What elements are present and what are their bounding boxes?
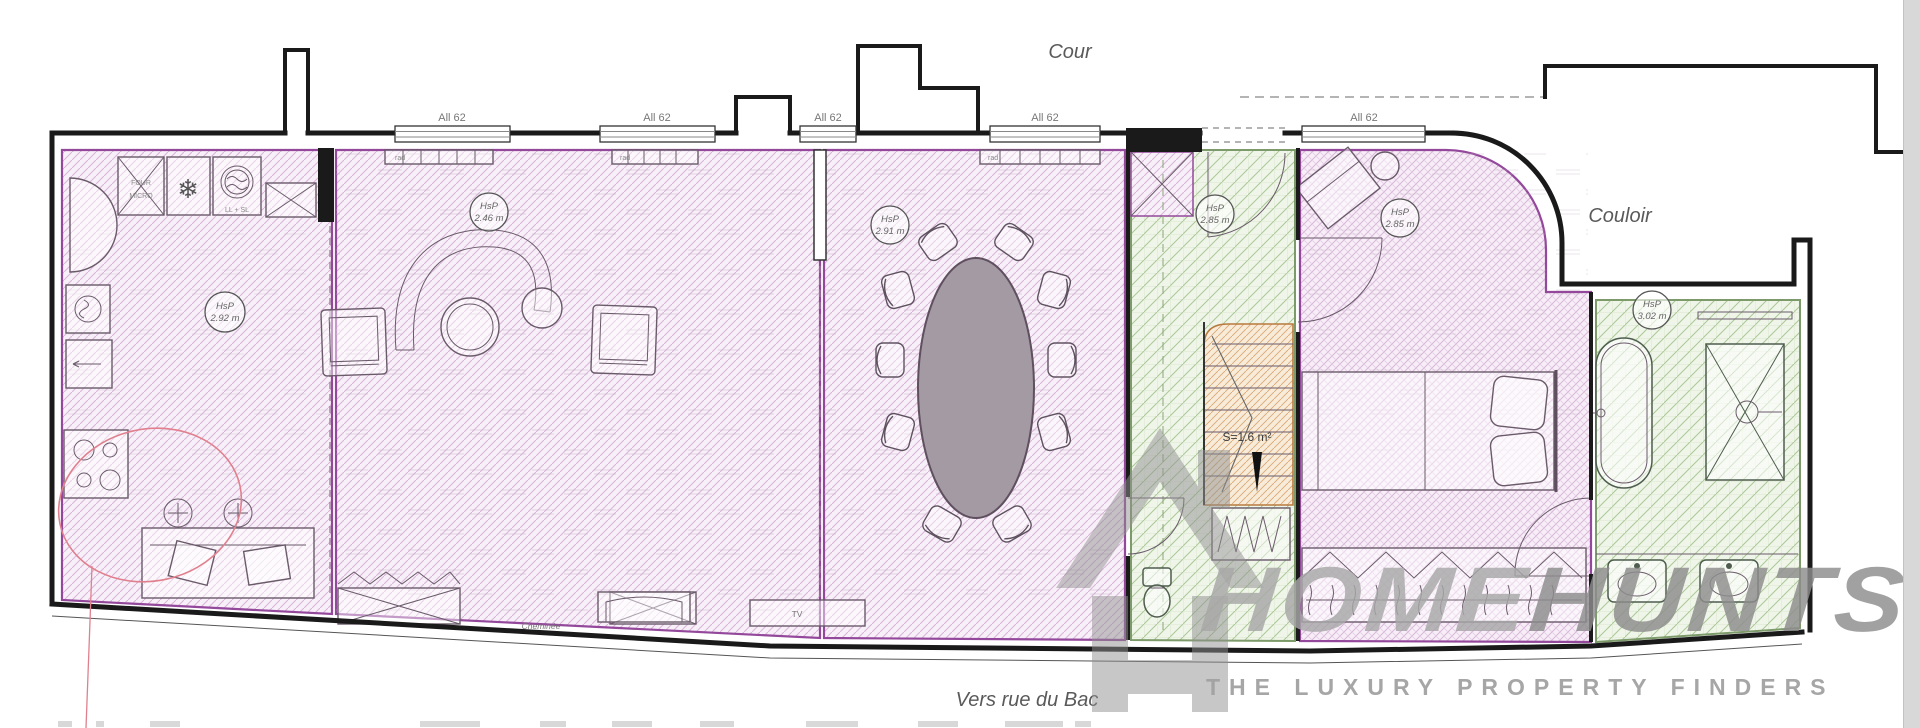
pillow bbox=[1490, 375, 1549, 430]
living-dining-wall-stub bbox=[814, 150, 826, 260]
bathtub bbox=[1591, 338, 1652, 488]
window: All 62 bbox=[990, 112, 1100, 142]
snowflake-icon: ❄ bbox=[177, 174, 199, 204]
window: All 62 bbox=[1302, 112, 1425, 142]
floor-plan-page: FOUR MICRO ❄ LL + SL bbox=[0, 0, 1920, 728]
dining-table bbox=[918, 258, 1034, 518]
window-sill-label: All 62 bbox=[438, 112, 466, 124]
washer-dryer-label: LL + SL bbox=[225, 207, 249, 214]
kitchen-living-wall-stub bbox=[318, 148, 334, 222]
svg-text:HsP: HsP bbox=[881, 214, 900, 225]
armchair bbox=[321, 308, 387, 376]
cropped-dimension-marks bbox=[58, 721, 1091, 727]
svg-text:HsP: HsP bbox=[480, 201, 499, 212]
entry-wall-pier bbox=[1126, 128, 1202, 152]
ceiling-height-badge-entrance: HsP 2.85 m bbox=[1196, 195, 1234, 233]
svg-text:HsP: HsP bbox=[1391, 207, 1410, 218]
cooktop bbox=[64, 430, 128, 498]
exterior-corridor-wall bbox=[1545, 66, 1902, 152]
kitchen-sink bbox=[66, 285, 110, 333]
svg-text:2.91 m: 2.91 m bbox=[874, 226, 904, 237]
window-sill-label: All 62 bbox=[1350, 112, 1378, 124]
coffee-table bbox=[441, 298, 499, 356]
radiator: rad bbox=[385, 150, 493, 164]
ceiling-height-badge-dining: HsP 2.91 m bbox=[871, 206, 909, 244]
dishwasher bbox=[66, 340, 112, 388]
homehunts-tagline: THE LUXURY PROPERTY FINDERS bbox=[1206, 674, 1835, 701]
svg-text:2.46 m: 2.46 m bbox=[473, 213, 503, 224]
washer-dryer-unit: LL + SL bbox=[213, 157, 261, 215]
double-bed bbox=[1302, 370, 1556, 492]
side-pouf bbox=[522, 288, 562, 328]
shower bbox=[1706, 344, 1784, 480]
windows: All 62 All 62 All 62 All 62 All 62 bbox=[395, 112, 1425, 142]
svg-text:HsP: HsP bbox=[216, 301, 235, 312]
storage-cupboard bbox=[266, 183, 316, 217]
radiator-label: rad bbox=[395, 155, 405, 162]
radiator: rad bbox=[612, 150, 698, 164]
corridor-label: Couloir bbox=[1588, 205, 1653, 227]
tv-label: TV bbox=[792, 609, 803, 619]
window-sill-label: All 62 bbox=[1031, 112, 1059, 124]
svg-text:2.92 m: 2.92 m bbox=[209, 313, 239, 324]
svg-text:2.85 m: 2.85 m bbox=[1199, 215, 1229, 226]
tv-console: TV bbox=[750, 600, 865, 626]
brand-hunts: HUNTS bbox=[1525, 549, 1911, 651]
chimney-wall bbox=[858, 46, 978, 133]
svg-text:HsP: HsP bbox=[1643, 299, 1662, 310]
ceiling-height-badge-bathroom: HsP 3.02 m bbox=[1633, 291, 1671, 329]
pillow bbox=[1490, 431, 1549, 486]
courtyard-label: Cour bbox=[1048, 41, 1093, 63]
bay-window-box bbox=[736, 97, 790, 133]
desk-stool bbox=[1371, 152, 1399, 180]
window: All 62 bbox=[395, 112, 510, 142]
armchair bbox=[591, 305, 657, 375]
window-sill-label: All 62 bbox=[814, 112, 842, 124]
window: All 62 bbox=[800, 112, 856, 142]
oven-label-line2: MICRO bbox=[129, 193, 153, 200]
ceiling-height-badge-bedroom: HsP 2.85 m bbox=[1381, 199, 1419, 237]
brand-home: HOME bbox=[1197, 549, 1533, 651]
island-chair bbox=[244, 545, 291, 585]
ceiling-height-badge-kitchen: HsP 2.92 m bbox=[205, 292, 245, 332]
ceiling-height-badge-living: HsP 2.46 m bbox=[470, 193, 508, 231]
svg-text:3.02 m: 3.02 m bbox=[1637, 311, 1666, 322]
homehunts-brand-text: HOMEHUNTS bbox=[1197, 548, 1912, 653]
radiator-label: rad bbox=[620, 155, 630, 162]
svg-text:2.85 m: 2.85 m bbox=[1384, 219, 1414, 230]
window: All 62 bbox=[600, 112, 715, 142]
fridge-unit: ❄ bbox=[167, 157, 210, 215]
window-sill-label: All 62 bbox=[643, 112, 671, 124]
oven-microwave-unit: FOUR MICRO bbox=[118, 157, 164, 215]
oven-label-line1: FOUR bbox=[131, 180, 151, 187]
radiator-label: rad bbox=[988, 155, 998, 162]
viewer-edge-strip bbox=[1903, 0, 1920, 728]
radiator: rad bbox=[980, 150, 1100, 164]
svg-text:HsP: HsP bbox=[1206, 203, 1225, 214]
